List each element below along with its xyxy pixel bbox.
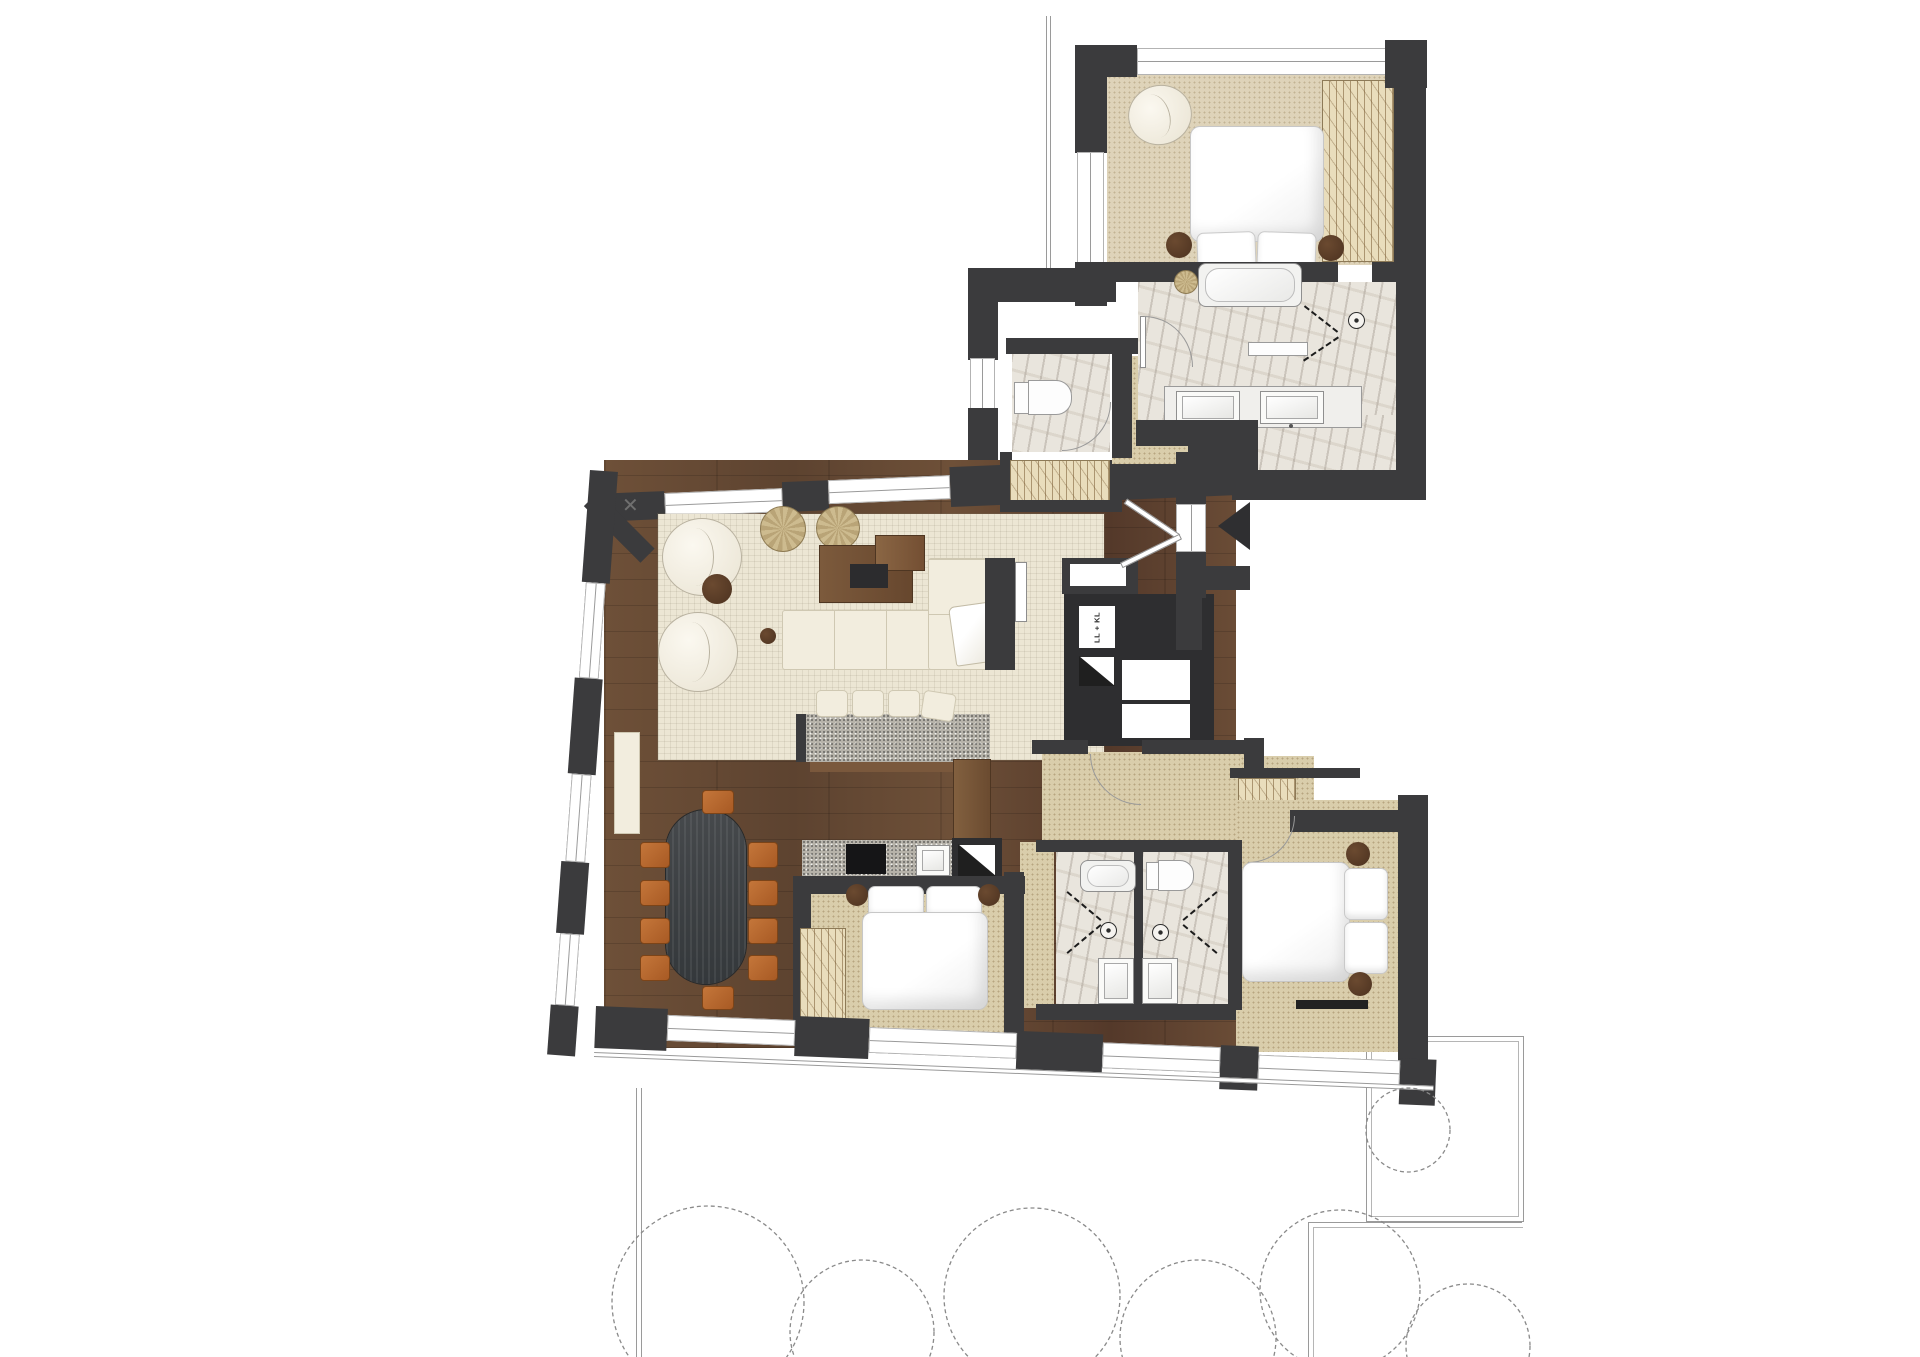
- dining-chair: [748, 880, 778, 906]
- bath-stool: [1174, 270, 1198, 294]
- entry-door-opening: [1176, 504, 1206, 552]
- bar-stool: [920, 690, 957, 723]
- window: [1077, 152, 1104, 264]
- door-leaf: [1015, 562, 1027, 622]
- dining-chair: [640, 842, 670, 868]
- window: [565, 773, 591, 862]
- small-side-table: [760, 628, 776, 644]
- kitchen-tall-cabinet: [954, 760, 990, 846]
- kitchen-island-counter: [806, 714, 990, 762]
- entry-wall-stub-outer: [1206, 566, 1250, 590]
- dining-table: [666, 810, 746, 984]
- bedroom2-wardrobe: [800, 928, 846, 1028]
- nightstand: [1346, 842, 1370, 866]
- technical-shaft-diagonal: [1079, 656, 1115, 686]
- wall-segment: [568, 677, 603, 775]
- dining-chair: [702, 790, 734, 814]
- nightstand: [978, 884, 1000, 906]
- media-console: [1296, 1000, 1368, 1009]
- tree-canopy: [1406, 1284, 1530, 1357]
- window: [1137, 48, 1387, 75]
- wall-segment: [1075, 45, 1107, 153]
- rattan-pouf: [816, 506, 860, 550]
- lower-hall-floor: [1042, 752, 1244, 848]
- wall-segment: [1112, 338, 1132, 458]
- entrance-arrow-icon: [1218, 502, 1250, 550]
- master-bed-duvet: [1190, 126, 1324, 242]
- dining-chair: [748, 842, 778, 868]
- bar-stool: [852, 690, 884, 717]
- niche-opening: [1070, 564, 1126, 586]
- hall-strip-floor: [1020, 842, 1054, 1008]
- hall-top-wall: [1142, 740, 1246, 754]
- dining-chair: [702, 986, 734, 1010]
- technical-shaft: [958, 844, 996, 876]
- wall-segment: [1136, 420, 1236, 446]
- window: [970, 358, 995, 410]
- entry-wall-upper: [1176, 452, 1206, 504]
- shaft-closet-labelled: LL + KL: [1079, 606, 1115, 648]
- window: [579, 582, 606, 679]
- closet-wall: [1230, 768, 1360, 778]
- tree-canopy: [790, 1260, 934, 1357]
- rattan-pouf: [760, 506, 806, 552]
- bath-vanity-sink: [1142, 958, 1178, 1004]
- bedroom2-bed-duvet: [862, 912, 988, 1010]
- tree-canopy: [1260, 1210, 1420, 1357]
- nightstand: [1166, 232, 1192, 258]
- shower-head-icon: [1152, 924, 1169, 941]
- wall-stub-living: [985, 558, 1015, 670]
- bedroom3-pillow: [1344, 868, 1388, 920]
- bedroom3-bed-duvet: [1242, 862, 1350, 982]
- tree-canopy: [944, 1208, 1120, 1357]
- dining-chair: [640, 955, 670, 981]
- toilet-icon: [1348, 312, 1365, 329]
- cooktop: [846, 844, 886, 874]
- wall-segment: [1232, 470, 1426, 500]
- technical-shaft-open: [1122, 660, 1190, 700]
- nightstand: [846, 884, 868, 906]
- tree-canopy: [1120, 1260, 1276, 1357]
- bedroom2-right-wall: [1004, 872, 1024, 1044]
- bedroom3-right-wall: [1398, 795, 1428, 1065]
- garden-trees-sketch: [560, 1040, 1580, 1357]
- technical-shaft-open: [1122, 704, 1190, 738]
- bath-vanity-sink: [1098, 958, 1134, 1004]
- nightstand: [1348, 972, 1372, 996]
- bathtub-small: [1080, 860, 1136, 892]
- wall-segment: [968, 408, 998, 460]
- site-boundary-line-top: [1046, 16, 1051, 272]
- wall-segment: [556, 861, 589, 935]
- faucet-icon: [1289, 424, 1293, 428]
- kitchen-sink: [916, 845, 950, 876]
- dining-chair: [748, 918, 778, 944]
- hall-top-wall: [1032, 740, 1088, 754]
- planter-bush: [1366, 1088, 1450, 1172]
- wall-below-entry: [1176, 592, 1202, 650]
- dining-chair: [748, 955, 778, 981]
- wall-segment: [1000, 500, 1122, 512]
- tree-canopy: [612, 1206, 804, 1357]
- baths-bottom-wall: [1036, 1004, 1238, 1020]
- baths-bedroom3-wall: [1228, 840, 1242, 1010]
- bar-stool: [888, 690, 920, 717]
- window: [828, 475, 951, 504]
- bath-bench: [1248, 342, 1308, 356]
- sprinkler-icon: ✕: [622, 496, 639, 516]
- side-table: [702, 574, 732, 604]
- bathtub: [1198, 263, 1302, 307]
- master-right-wall: [1394, 45, 1426, 500]
- nightstand: [1318, 235, 1344, 261]
- coffee-table-tray: [850, 564, 888, 588]
- lounge-chair: [658, 612, 738, 692]
- bedroom3-pillow: [1344, 922, 1388, 974]
- bedroom-bath-divider-wall: [1372, 262, 1398, 282]
- kitchen-island-wood-face: [810, 762, 960, 772]
- window: [555, 933, 580, 1006]
- vanity-sink: [1260, 391, 1324, 424]
- sideboard: [614, 732, 640, 834]
- bar-stool: [816, 690, 848, 717]
- shower-head-icon: [1100, 922, 1117, 939]
- bedroom3-top-wall: [1290, 810, 1402, 832]
- wall-segment: [968, 288, 998, 360]
- dining-chair: [640, 880, 670, 906]
- dining-chair: [640, 918, 670, 944]
- apartment-floor-plan: ✕: [0, 0, 1920, 1357]
- shaft-label: LL + KL: [1093, 611, 1102, 642]
- hall-closet: [1010, 460, 1110, 502]
- toilet-bowl: [1158, 860, 1194, 891]
